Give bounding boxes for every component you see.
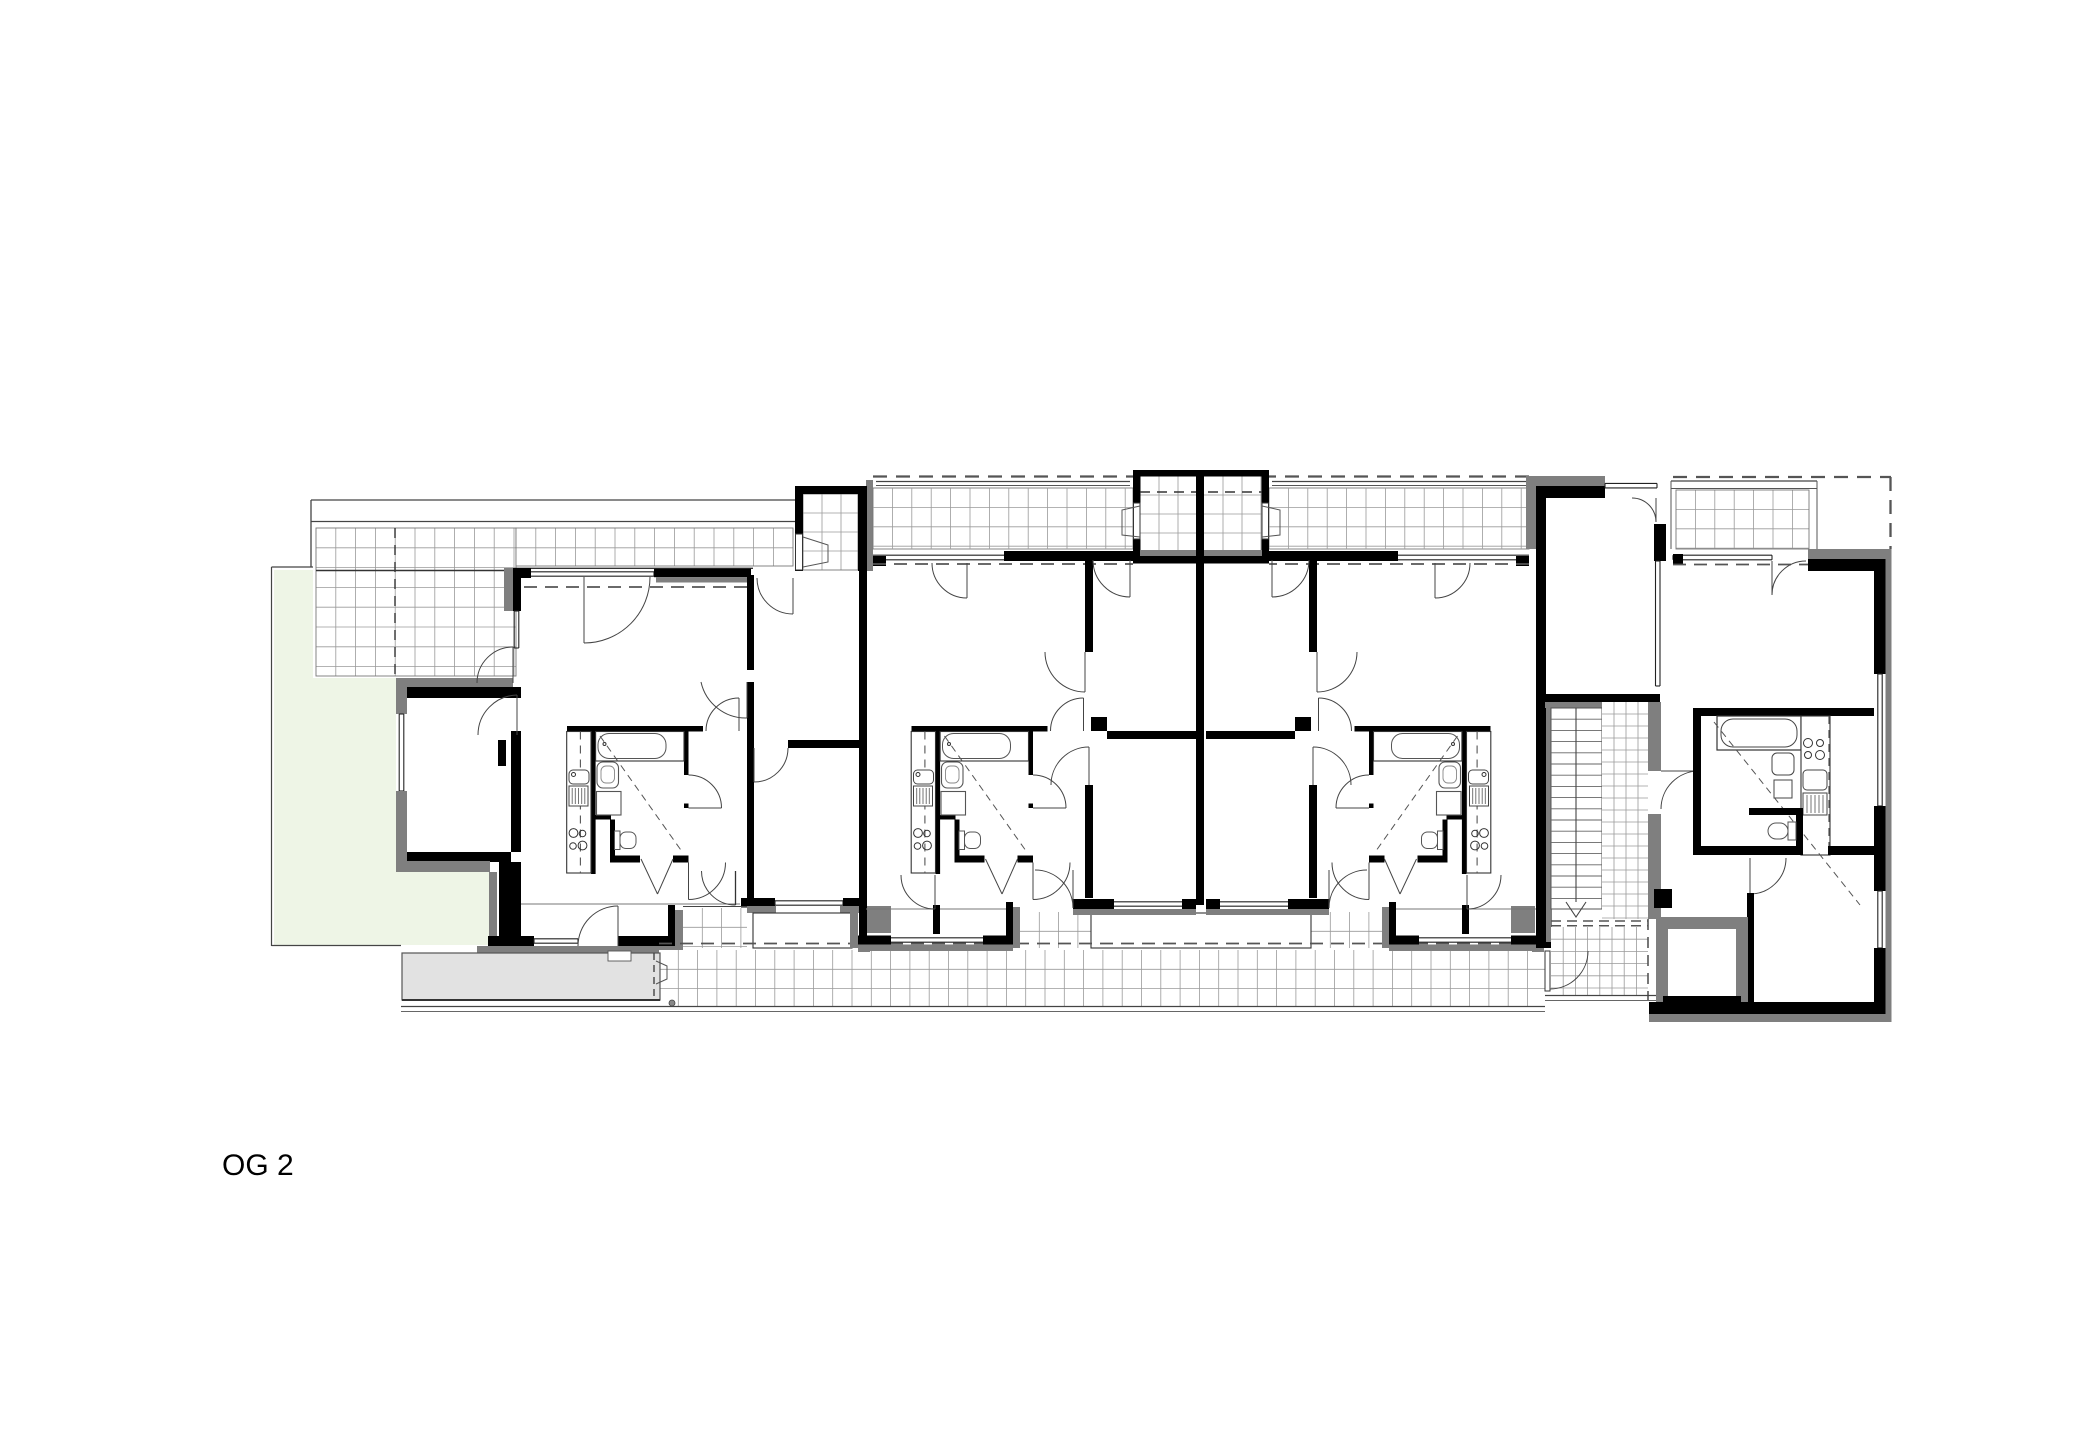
svg-text:OG 2: OG 2: [222, 1149, 294, 1182]
